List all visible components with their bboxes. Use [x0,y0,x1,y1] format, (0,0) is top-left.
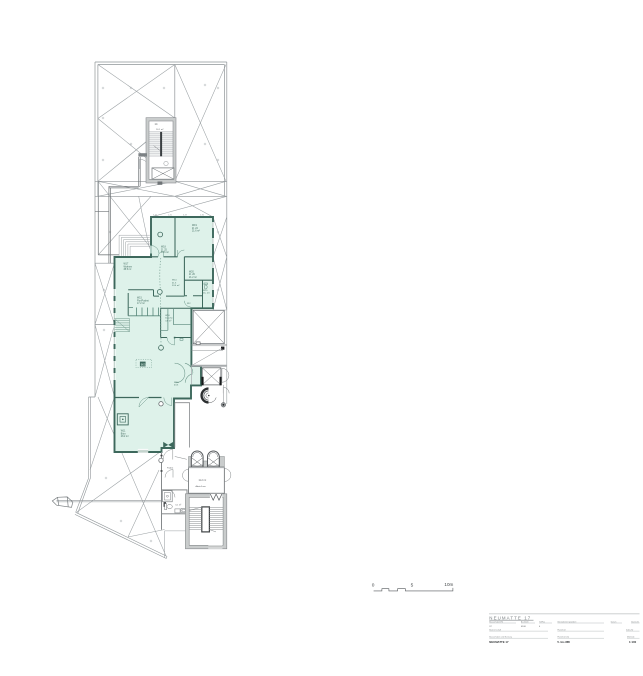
svg-text:W20: W20 [189,271,194,273]
svg-text:Podest: Podest [167,466,174,469]
svg-text:Bauherrschaft: Bauherrschaft [489,628,501,631]
svg-text:W14: W14 [172,280,177,282]
svg-text:Zi. 24: Zi. 24 [192,228,198,230]
svg-text:5: 5 [411,582,414,588]
svg-text:W16: W16 [165,315,170,317]
svg-text:17.2 m²: 17.2 m² [137,302,145,305]
svg-text:Zi. 26: Zi. 26 [189,274,195,276]
svg-text:Wohnen: Wohnen [124,266,133,268]
svg-text:Maßstab: Maßstab [627,635,634,638]
svg-text:21.2 m²: 21.2 m² [189,276,197,279]
svg-text:14.6 m²: 14.6 m² [161,251,169,254]
svg-text:Zi. 25: Zi. 25 [161,249,167,251]
svg-text:1:100: 1:100 [629,640,637,644]
svg-text:Abstell neu: Abstell neu [196,485,207,488]
svg-text:28.2 m²: 28.2 m² [121,435,129,438]
svg-text:Du. 23: Du. 23 [203,293,210,295]
svg-text:53.4 m²: 53.4 m² [172,284,180,287]
svg-text:11.2 m²: 11.2 m² [199,479,207,482]
svg-text:5. bis 885: 5. bis 885 [557,640,570,644]
svg-text:37: 37 [489,626,492,628]
svg-text:38.5 m²: 38.5 m² [124,268,132,271]
svg-text:WC: WC [187,303,191,305]
svg-text:Dusche: Dusche [165,318,173,320]
svg-text:NEUMATTE 17: NEUMATTE 17 [489,640,509,644]
svg-text:W15: W15 [137,298,142,300]
svg-text:NEUMATTE 17: NEUMATTE 17 [489,615,531,620]
svg-text:W17: W17 [124,264,129,266]
svg-text:0: 0 [372,582,375,588]
svg-text:W15: W15 [203,290,208,292]
svg-text:Flur/Podest: Flur/Podest [137,299,149,302]
svg-text:3.9 m²: 3.9 m² [165,319,171,322]
svg-text:B05: B05 [141,362,146,366]
svg-text:Bauvorhaben und Nutzung: Bauvorhaben und Nutzung [489,635,512,638]
svg-text:6.1 m²: 6.1 m² [176,504,182,507]
svg-text:4: 4 [539,626,541,628]
svg-text:W19: W19 [192,225,197,227]
svg-text:10m: 10m [444,582,453,587]
svg-text:21.6 m²: 21.6 m² [192,230,200,233]
svg-text:Index-Nr: Index-Nr [626,628,634,631]
svg-text:W11: W11 [121,431,126,433]
svg-text:16.1 m²: 16.1 m² [156,128,164,131]
svg-text:W13: W13 [174,382,179,384]
svg-text:Büro: Büro [121,432,127,435]
svg-text:W18: W18 [161,247,166,249]
svg-text:Planinhalt: Planinhalt [557,628,566,631]
svg-text:6108: 6108 [521,626,526,628]
svg-text:Planinhalt (m): Planinhalt (m) [557,635,569,638]
